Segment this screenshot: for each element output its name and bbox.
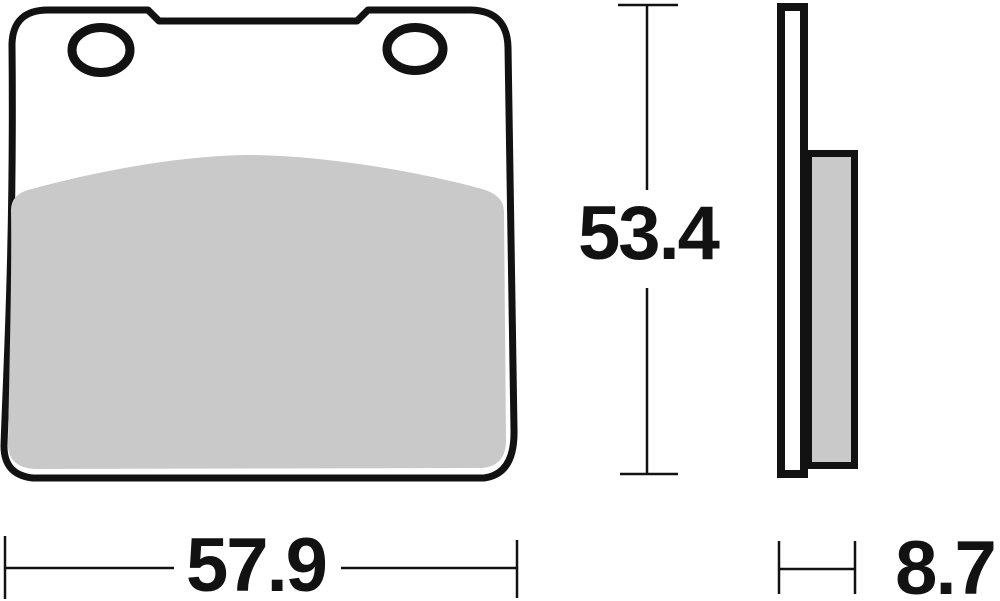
width-dimension-label: 57.9	[176, 528, 336, 601]
thickness-dimension-label: 8.7	[885, 531, 1000, 601]
front-view	[4, 10, 514, 478]
mounting-hole-left	[72, 28, 130, 73]
mounting-hole-right	[387, 28, 443, 71]
height-dimension-label: 53.4	[568, 196, 728, 272]
side-view	[781, 7, 855, 474]
side-backing-plate	[781, 7, 804, 474]
friction-material	[8, 155, 506, 469]
thickness-dimension	[779, 541, 855, 594]
technical-drawing-canvas: 57.9 53.4 8.7	[0, 0, 1000, 601]
brake-pad-diagram-svg	[0, 0, 1000, 601]
side-friction-layer	[809, 154, 855, 466]
